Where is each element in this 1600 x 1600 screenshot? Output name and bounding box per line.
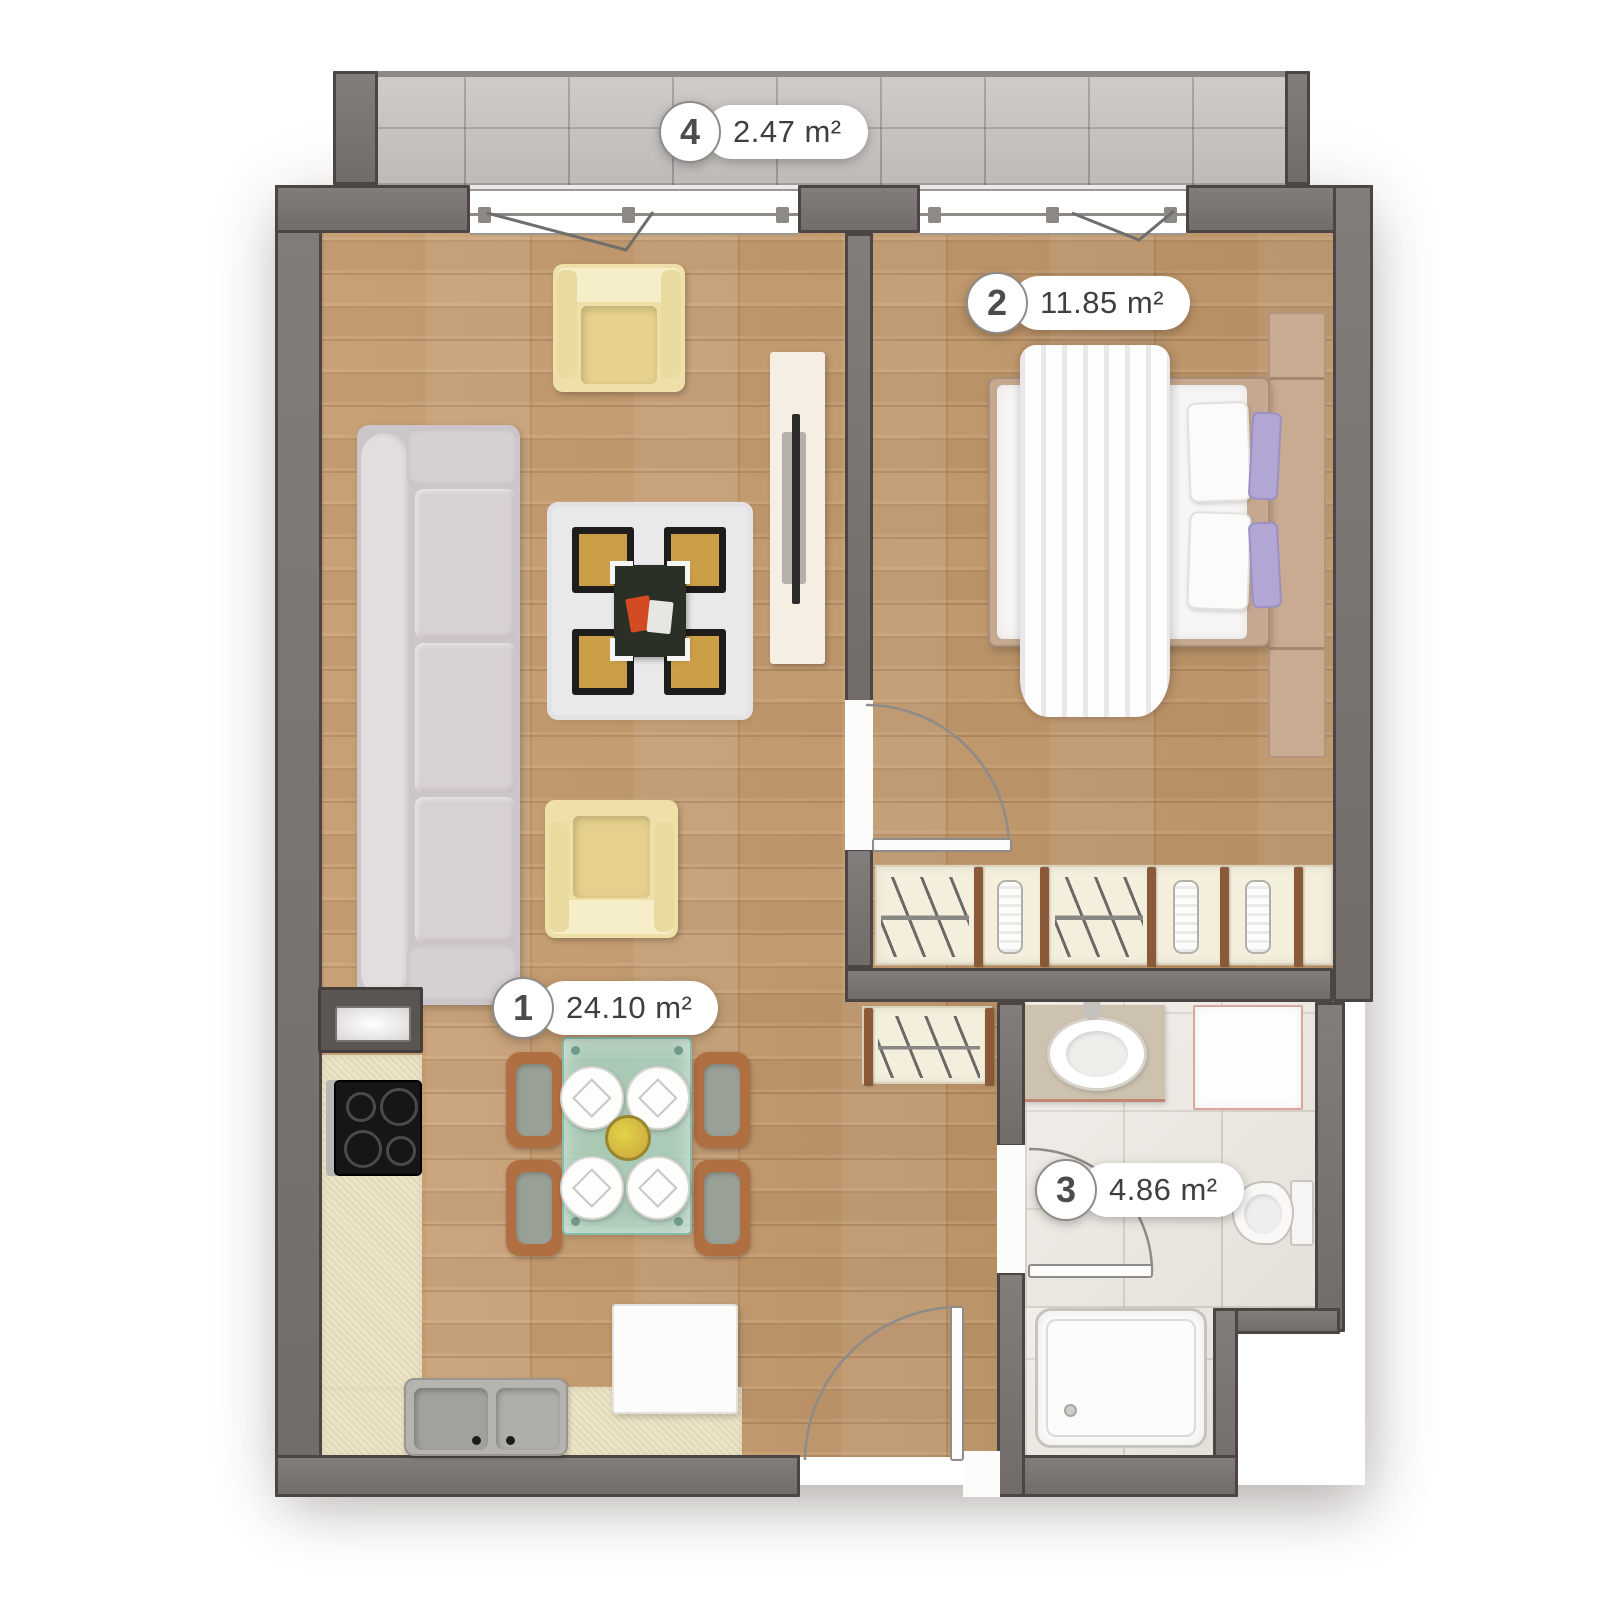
- burner: [344, 1130, 382, 1168]
- dining-chair: [694, 1052, 750, 1148]
- room-area: 4.86 m²: [1109, 1172, 1218, 1208]
- table-corner: [667, 561, 690, 584]
- armchair-top: [553, 264, 685, 392]
- room-number: 3: [1056, 1169, 1076, 1211]
- room-label-2: 2 11.85 m²: [966, 272, 1190, 334]
- folded-linen: [1173, 880, 1199, 954]
- built-in-oven: [318, 987, 423, 1053]
- room-number-badge: 2: [966, 272, 1028, 334]
- armchair-wing: [661, 270, 681, 378]
- closet-side: [864, 1008, 873, 1086]
- window-mullion: [776, 207, 789, 223]
- sink-bowl: [1066, 1031, 1128, 1077]
- plate: [626, 1156, 690, 1220]
- wardrobe-divider: [974, 867, 983, 967]
- wall-bottom-left: [275, 1455, 800, 1497]
- table-corner: [667, 638, 690, 661]
- folded-linen: [997, 880, 1023, 954]
- refrigerator: [612, 1304, 738, 1414]
- armchair-bottom: [545, 800, 678, 938]
- armchair-seat: [573, 816, 650, 898]
- room-number: 4: [680, 111, 700, 153]
- wardrobe-divider: [1040, 867, 1049, 967]
- wardrobe-divider: [1220, 867, 1229, 967]
- chair-pad: [704, 1064, 740, 1136]
- armchair-wing: [557, 270, 577, 378]
- washing-machine: [1193, 1005, 1303, 1110]
- balcony-wall-left: [333, 71, 378, 185]
- room-number: 2: [987, 282, 1007, 324]
- room-area: 2.47 m²: [733, 114, 842, 150]
- sofa-armrest-top: [407, 429, 517, 485]
- room-area: 24.10 m²: [566, 990, 692, 1026]
- balcony-wall-right: [1285, 71, 1310, 185]
- hanging-clothes: [878, 1016, 980, 1078]
- wardrobe: [875, 865, 1333, 965]
- bathroom-sink: [1047, 1017, 1147, 1091]
- wall-left: [275, 185, 322, 1497]
- burner: [380, 1088, 418, 1126]
- closet-side: [985, 1008, 994, 1086]
- chair-pad: [516, 1064, 552, 1136]
- room-label-1: 1 24.10 m²: [492, 977, 718, 1039]
- tv-screen: [792, 414, 800, 604]
- oven-window: [335, 1006, 411, 1042]
- sofa: [357, 425, 520, 1005]
- armchair-wing: [654, 822, 674, 932]
- wall-living-bedroom: [845, 233, 873, 703]
- room-area-pill: 4.86 m²: [1081, 1163, 1244, 1217]
- balcony-window-door: [470, 189, 798, 235]
- wall-top-left: [275, 185, 470, 233]
- wall-hall-bathroom-upper: [997, 1002, 1025, 1147]
- salad-bowl: [605, 1115, 651, 1161]
- dining-chair: [506, 1160, 562, 1256]
- bedroom-window: [920, 189, 1186, 235]
- area-rug: [552, 507, 748, 715]
- magazine: [646, 600, 673, 634]
- nightstand-divider: [1270, 377, 1324, 380]
- hallway-closet: [862, 1006, 992, 1084]
- tv-cabinet: [770, 352, 825, 664]
- nightstand-divider: [1270, 647, 1324, 650]
- wardrobe-divider: [1294, 867, 1303, 967]
- room-label-4: 4 2.47 m²: [659, 101, 868, 163]
- hanging-clothes: [881, 877, 969, 957]
- armchair-wing: [549, 822, 569, 932]
- shower-tray-rim: [1046, 1319, 1196, 1437]
- room-number-badge: 3: [1035, 1159, 1097, 1221]
- window-mullion: [478, 207, 491, 223]
- wall-bottom-right: [1000, 1455, 1238, 1497]
- entrance-door-frame: [963, 1451, 1000, 1497]
- bathroom-vanity: [1025, 1005, 1165, 1102]
- dining-chair: [506, 1052, 562, 1148]
- kitchen-sink: [404, 1378, 568, 1456]
- chair-pad: [704, 1172, 740, 1244]
- room-area-pill: 24.10 m²: [538, 981, 718, 1035]
- window-mullion: [1164, 207, 1177, 223]
- wall-bedroom-hall: [845, 968, 1333, 1002]
- sofa-backrest: [361, 433, 411, 997]
- sink-drain: [506, 1436, 515, 1445]
- wardrobe-divider: [1147, 867, 1156, 967]
- table-screw: [674, 1046, 683, 1055]
- cooktop: [334, 1080, 422, 1176]
- folded-linen: [1245, 880, 1271, 954]
- sofa-cushion: [415, 797, 515, 943]
- sofa-cushion: [415, 489, 515, 639]
- table-screw: [571, 1217, 580, 1226]
- coffee-table: [614, 565, 686, 657]
- shower-drain: [1064, 1404, 1077, 1417]
- table-screw: [674, 1217, 683, 1226]
- room-area-pill: 2.47 m²: [705, 105, 868, 159]
- room-number: 1: [513, 987, 533, 1029]
- hanging-clothes: [1055, 877, 1143, 957]
- wall-right: [1333, 185, 1373, 1002]
- burner: [386, 1136, 416, 1166]
- wall-hall-bathroom-lower: [997, 1272, 1025, 1497]
- bathroom-door-frame: [997, 1145, 1025, 1273]
- accent-pillow: [1248, 521, 1282, 608]
- table-corner: [610, 638, 633, 661]
- toilet: [1232, 1178, 1316, 1250]
- sofa-cushion: [415, 643, 515, 793]
- room-number-badge: 1: [492, 977, 554, 1039]
- room-number-badge: 4: [659, 101, 721, 163]
- room-area: 11.85 m²: [1040, 285, 1164, 321]
- table-screw: [571, 1046, 580, 1055]
- wall-top-pillar: [798, 185, 920, 233]
- pillow: [1186, 401, 1251, 503]
- room-label-3: 3 4.86 m²: [1035, 1159, 1244, 1221]
- shower-tray: [1035, 1308, 1207, 1448]
- window-mullion: [928, 207, 941, 223]
- wall-living-bedroom-lower: [845, 848, 873, 968]
- room-area-pill: 11.85 m²: [1012, 276, 1190, 330]
- duvet: [1020, 345, 1170, 717]
- balcony-railing: [360, 71, 1285, 77]
- pillow: [1186, 511, 1251, 611]
- bedroom-door-frame: [845, 700, 873, 850]
- dining-chair: [694, 1160, 750, 1256]
- table-corner: [610, 561, 633, 584]
- armchair-seat: [581, 306, 657, 384]
- window-mullion: [622, 207, 635, 223]
- burner: [346, 1092, 376, 1122]
- chair-pad: [516, 1172, 552, 1244]
- wall-bathroom-right: [1315, 1002, 1345, 1332]
- window-mullion: [1046, 207, 1059, 223]
- floor-plan: 1 24.10 m² 2 11.85 m² 3 4.86 m² 4 2.47 m…: [0, 0, 1600, 1600]
- plate: [560, 1156, 624, 1220]
- sink-drain: [472, 1436, 481, 1445]
- accent-pillow: [1248, 411, 1283, 500]
